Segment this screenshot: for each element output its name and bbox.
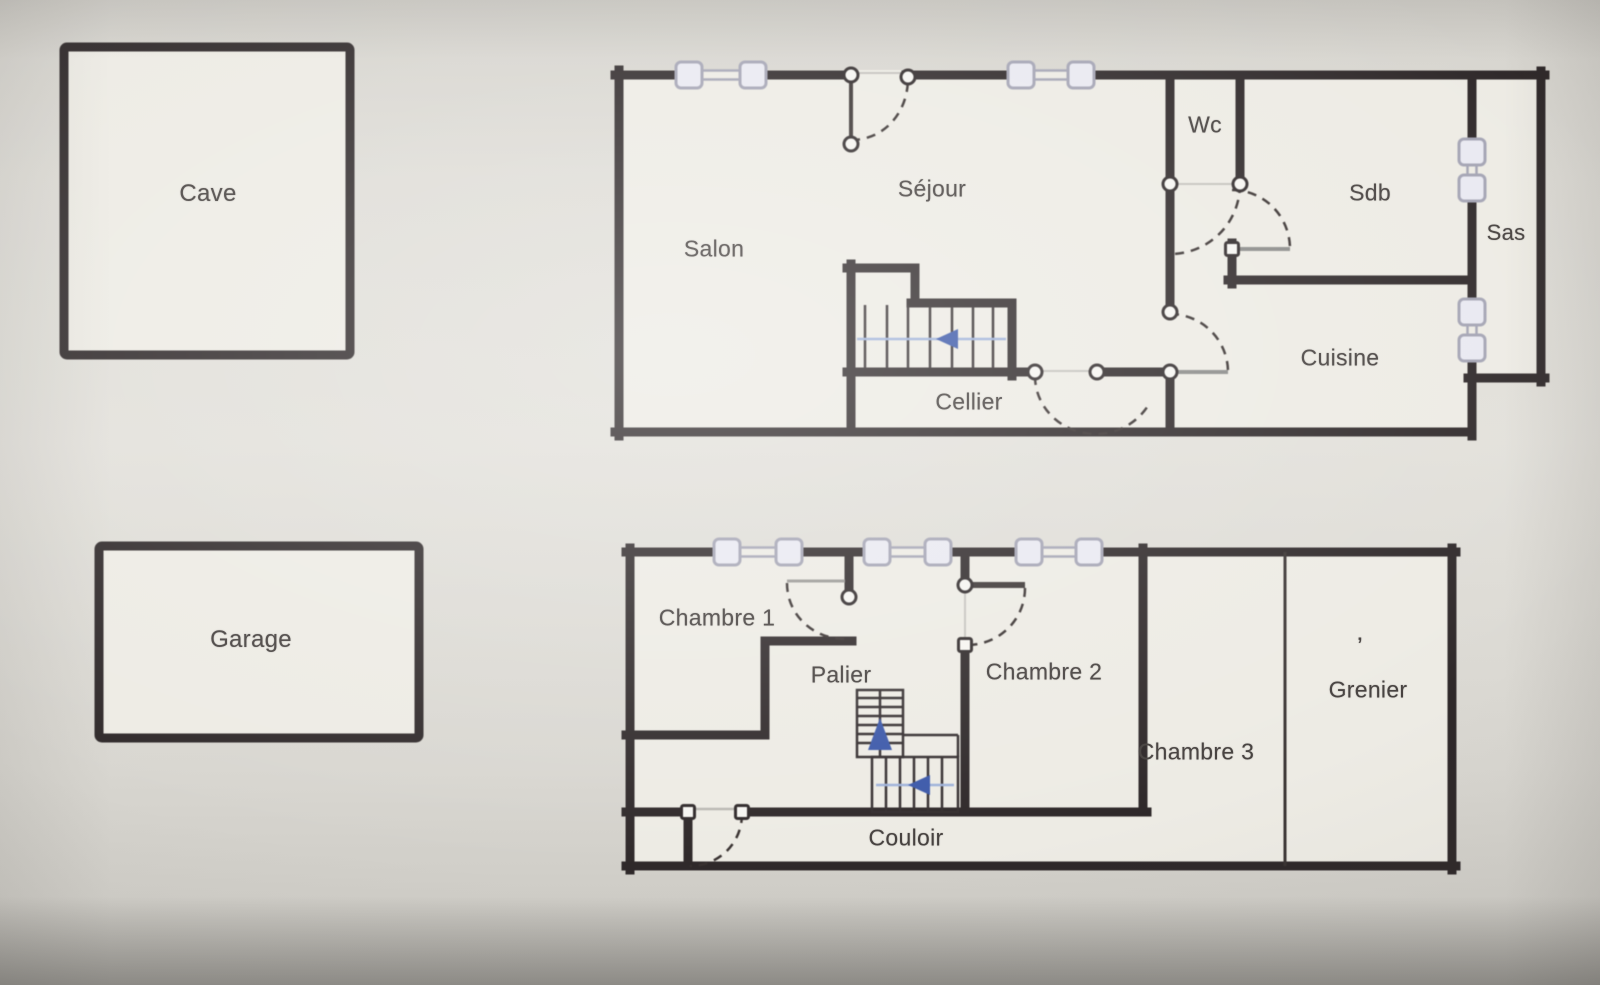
paper-background bbox=[64, 47, 1546, 871]
room-label-cuisine: Cuisine bbox=[1301, 345, 1380, 372]
room-label-sdb: Sdb bbox=[1349, 180, 1391, 207]
room-label-cave: Cave bbox=[179, 180, 236, 208]
floor-plan-photo: Cave Garage Salon Séjour Wc Sdb Sas Cuis… bbox=[0, 0, 1600, 985]
room-label-salon: Salon bbox=[684, 236, 744, 263]
room-label-couloir: Couloir bbox=[869, 825, 944, 852]
room-label-wc: Wc bbox=[1188, 112, 1222, 139]
room-label-sas: Sas bbox=[1487, 220, 1526, 246]
room-label-garage: Garage bbox=[210, 626, 292, 654]
room-label-chambre1: Chambre 1 bbox=[659, 605, 775, 632]
room-label-chambre3: Chambre 3 bbox=[1138, 739, 1254, 766]
grenier-mark: ’ bbox=[1357, 635, 1362, 656]
room-label-grenier: Grenier bbox=[1329, 677, 1408, 704]
room-label-cellier: Cellier bbox=[935, 389, 1002, 416]
room-label-palier: Palier bbox=[811, 662, 872, 689]
room-label-chambre2: Chambre 2 bbox=[986, 659, 1102, 686]
floor-plan-drawing bbox=[0, 0, 1600, 985]
room-label-sejour: Séjour bbox=[898, 176, 966, 203]
